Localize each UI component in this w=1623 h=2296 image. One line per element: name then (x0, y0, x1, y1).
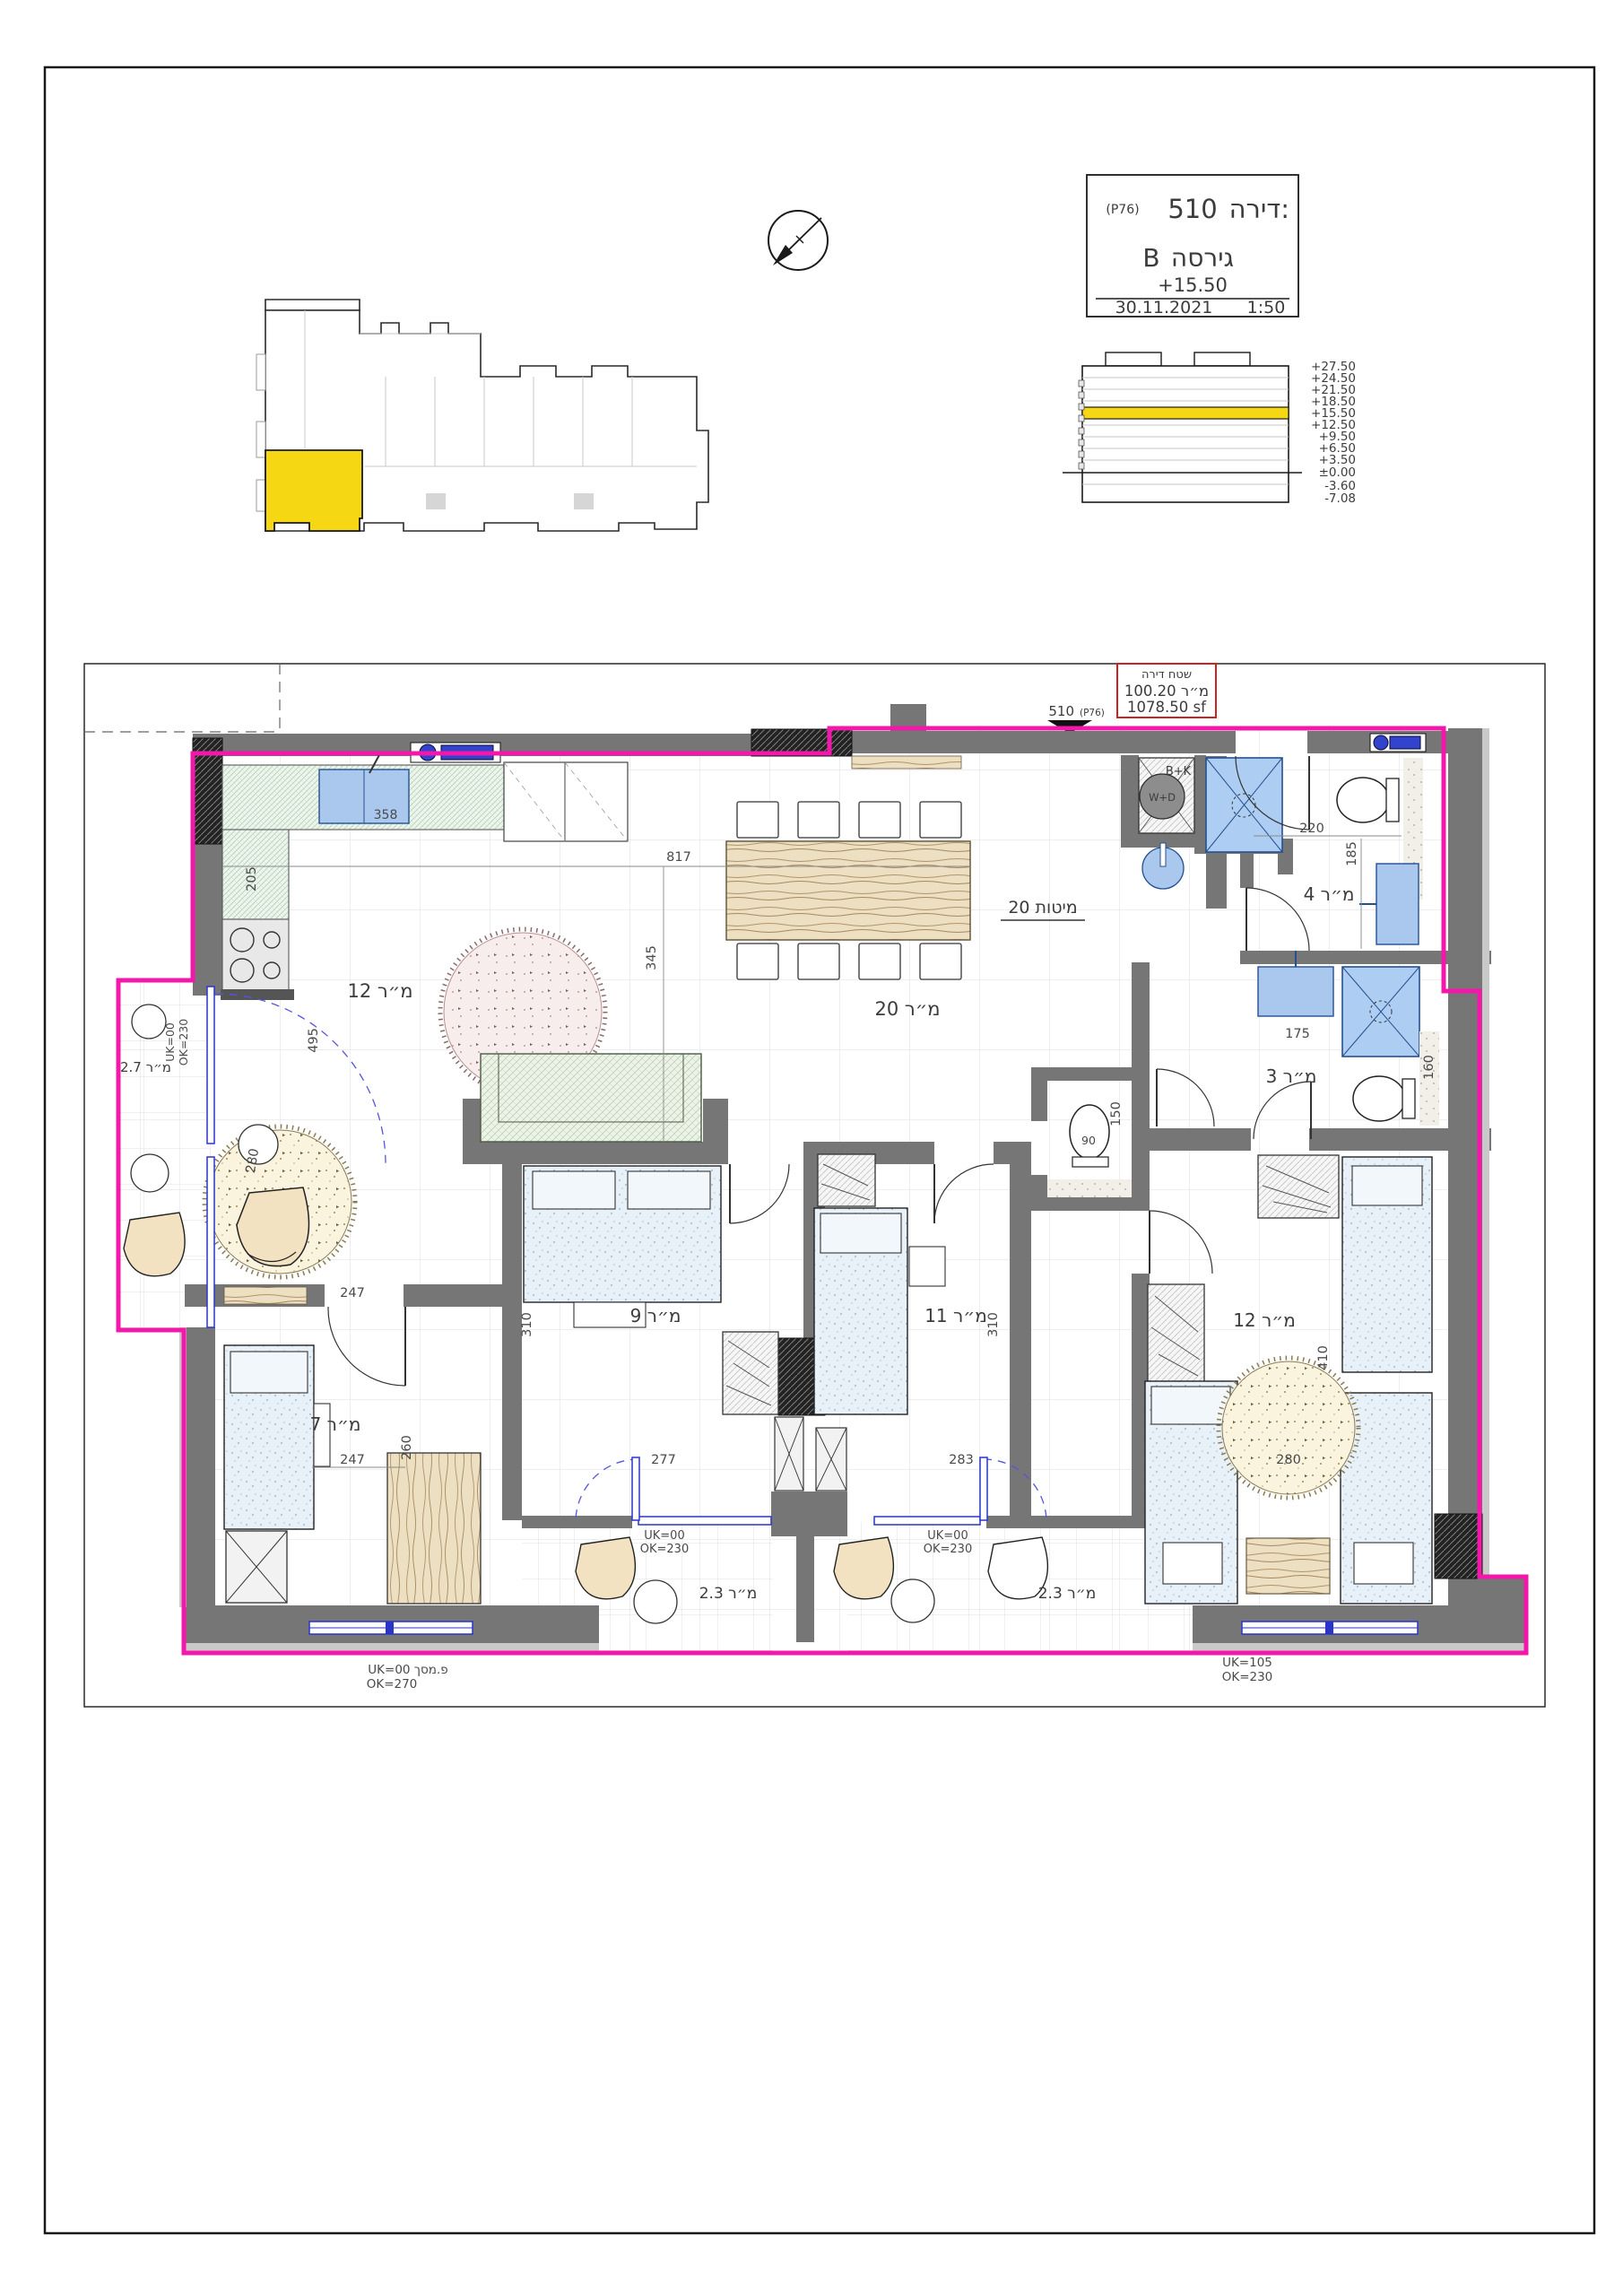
date-value: 30.11.2021 (1115, 298, 1213, 317)
cooktop (222, 919, 289, 991)
dim-living-w: 817 (666, 850, 691, 865)
label-bath-mid: מ״ר 3 (1266, 1065, 1317, 1087)
fridge-cabinet (504, 762, 628, 841)
area-box: שטח דירה מ״ר 100.20 1078.50 sf (1117, 664, 1216, 717)
sofa (481, 1054, 701, 1142)
key-plan-highlight-unit (265, 450, 362, 531)
label-bed-left: מ״ר 7 (310, 1413, 361, 1435)
dim-bed-left-h: 260 (400, 1435, 414, 1460)
entry-number: 510 (1048, 703, 1074, 719)
wardrobe (1258, 1155, 1339, 1218)
note-balc2-uk: UK=00 (927, 1529, 968, 1543)
wardrobe-wood (387, 1453, 481, 1604)
note-balc-left-uk: UK=00 (163, 1022, 177, 1062)
label-bed-mid: מ״ר 9 (630, 1305, 681, 1326)
dim-kitchen-h: 495 (307, 1028, 321, 1053)
wardrobe-2 (1148, 1284, 1204, 1383)
unit-code: (P76) (1106, 203, 1139, 217)
chair (834, 1537, 893, 1599)
area-sqm: מ״ר 100.20 (1124, 683, 1209, 700)
svg-text:±0.00: ±0.00 (1319, 465, 1356, 480)
note-win-left-uk: UK=00 פ.מסך (368, 1663, 447, 1677)
dim-bed-left-w1: 247 (340, 1286, 365, 1300)
dim-bath-top-w: 220 (1299, 822, 1324, 836)
label-bed-right: מ״ר 11 (924, 1305, 987, 1326)
label-balcony-2: מ״ר 2.3 (1038, 1585, 1097, 1603)
level-value: +15.50 (1158, 274, 1228, 296)
drawing-sheet: דירה: 510 (P76) גירסה B +15.50 30.11.202… (0, 0, 1623, 2296)
label-bath-top: מ״ר 4 (1304, 883, 1355, 905)
dim-bed-right-h: 310 (986, 1312, 1001, 1337)
scale-value: 1:50 (1247, 298, 1286, 317)
elevation-highlight-band (1082, 407, 1289, 419)
bk-label: B+K (1166, 765, 1192, 778)
wd-label: W+D (1149, 791, 1176, 804)
sink-mid (1258, 967, 1333, 1016)
dim-sink: 358 (374, 808, 398, 822)
dim-bed-left-w2: 247 (340, 1453, 365, 1467)
dim-balcony2-w: 283 (949, 1453, 974, 1467)
note-balc-left-ok: OK=230 (177, 1019, 190, 1065)
entry-code: (P76) (1080, 708, 1105, 718)
apartment-number: 510 (1167, 194, 1217, 224)
note-win-right-uk: UK=105 (1222, 1656, 1272, 1670)
note-win-right-ok: OK=230 (1222, 1670, 1273, 1684)
dim-wc-w: 90 (1081, 1134, 1096, 1147)
bench-wood (1246, 1538, 1330, 1594)
label-kitchen: מ״ר 12 (347, 980, 412, 1002)
label-bed-far: מ״ר 12 (1233, 1309, 1296, 1331)
dim-kitchen-w: 205 (245, 866, 259, 891)
version-label: גירסה (1171, 243, 1234, 273)
title-block: דירה: 510 (P76) גירסה B +15.50 30.11.202… (1087, 175, 1298, 317)
note-balc2-ok: OK=230 (924, 1543, 972, 1556)
dim-bath-top-h: 185 (1345, 841, 1359, 866)
apartment-label: דירה: (1229, 194, 1289, 224)
table (634, 1580, 677, 1623)
label-living: מ״ר 20 (874, 998, 940, 1020)
dim-balcony1-w: 277 (651, 1453, 676, 1467)
chair (576, 1537, 635, 1599)
toilet-mid-icon (1353, 1076, 1405, 1121)
table (891, 1579, 934, 1622)
floor-plan: B+K W+D (118, 704, 1526, 1692)
version-value: B (1142, 243, 1159, 273)
dim-bed-far-h: 410 (1316, 1345, 1331, 1370)
note-balc1-ok: OK=230 (640, 1543, 689, 1556)
sink-top (1376, 864, 1419, 944)
dim-bath-mid-h: 160 (1422, 1055, 1436, 1080)
note-win-left-ok: OK=270 (367, 1677, 418, 1692)
dim-wc-h: 150 (1109, 1101, 1124, 1126)
svg-text:-7.08: -7.08 (1324, 491, 1356, 506)
wardrobe (723, 1332, 778, 1414)
toilet-top-icon (1337, 778, 1389, 822)
area-title: שטח דירה (1141, 668, 1192, 682)
label-beds-note: מיטות 20 (1008, 898, 1077, 918)
note-balc1-uk: UK=00 (644, 1529, 684, 1543)
dim-living-h: 345 (645, 945, 659, 970)
dim-bath-mid-w: 175 (1285, 1027, 1310, 1041)
dim-bed-mid-h: 310 (520, 1312, 534, 1337)
balcony-chair (124, 1213, 185, 1276)
toilet-wc-icon (1070, 1105, 1109, 1159)
dim-rug-far: 280 (1276, 1453, 1301, 1467)
area-sqft: 1078.50 sf (1127, 699, 1207, 716)
label-balcony-1: מ״ר 2.3 (699, 1585, 758, 1603)
entry-bench (852, 756, 961, 769)
